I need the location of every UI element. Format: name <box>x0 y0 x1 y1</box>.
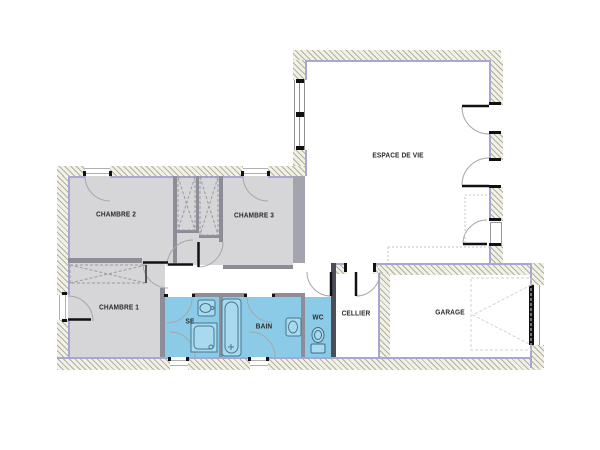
kitchen-counter-icon <box>388 195 489 263</box>
room-label-cellier: CELLIER <box>342 311 371 318</box>
wall-garage-right-upper <box>530 263 544 285</box>
door-panel-espace-garage <box>490 222 502 246</box>
wall-bottom-b <box>188 357 250 370</box>
wall-espace-right-4 <box>489 245 503 265</box>
partition-bain-wc <box>301 293 305 357</box>
wall-left-lower <box>57 320 70 357</box>
wall-cellier-right <box>378 273 390 357</box>
partition-closet-chambre3 <box>219 176 223 242</box>
room-closets-chambre-3 <box>173 176 293 265</box>
room-label-chambre-2: CHAMBRE 2 <box>96 212 136 219</box>
wall-espace-left-upper <box>293 60 307 80</box>
partition-chambre2-closet <box>173 176 177 263</box>
room-chambre-2 <box>68 176 173 263</box>
garage-door-outer-line <box>539 285 540 345</box>
room-label-se: SE <box>186 319 195 326</box>
room-label-garage: GARAGE <box>435 310 464 317</box>
wall-bottom-a <box>57 357 170 370</box>
partition-chambre2-bottom <box>68 258 142 263</box>
wall-garage-top <box>378 263 536 275</box>
wall-garage-right-lower <box>530 345 544 368</box>
garage-door-icon <box>471 278 531 350</box>
wall-espace-right-3 <box>489 187 503 221</box>
partition-wc-cellier <box>331 263 336 357</box>
garage-door <box>529 285 534 345</box>
partition-closets <box>196 176 199 233</box>
room-label-bain: BAIN <box>256 324 272 331</box>
wall-espace-right-2 <box>489 133 503 160</box>
wall-left-upper <box>57 176 70 295</box>
partition-se-bain <box>219 297 223 357</box>
partition-closet-shelf-1 <box>173 230 199 233</box>
partition-closet-shelf-2 <box>199 235 222 238</box>
room-wc <box>305 297 331 357</box>
room-label-wc: WC <box>312 315 323 322</box>
partition-chambre1-right <box>160 288 165 357</box>
partition-chambre3-bottom <box>223 265 293 269</box>
room-label-chambre-1: CHAMBRE 1 <box>99 305 139 312</box>
room-label-chambre-3: CHAMBRE 3 <box>234 213 274 220</box>
room-label-espace-de-vie: ESPACE DE VIE <box>372 153 423 160</box>
wall-espace-right-1 <box>489 60 503 105</box>
wall-bottom-c <box>268 357 542 370</box>
wall-chambre3-espace <box>293 176 305 263</box>
room-se <box>165 297 219 357</box>
wall-espace-top <box>293 50 501 62</box>
floor-plan: ESPACE DE VIE CHAMBRE 2 CHAMBRE 3 CHAMBR… <box>0 0 600 450</box>
